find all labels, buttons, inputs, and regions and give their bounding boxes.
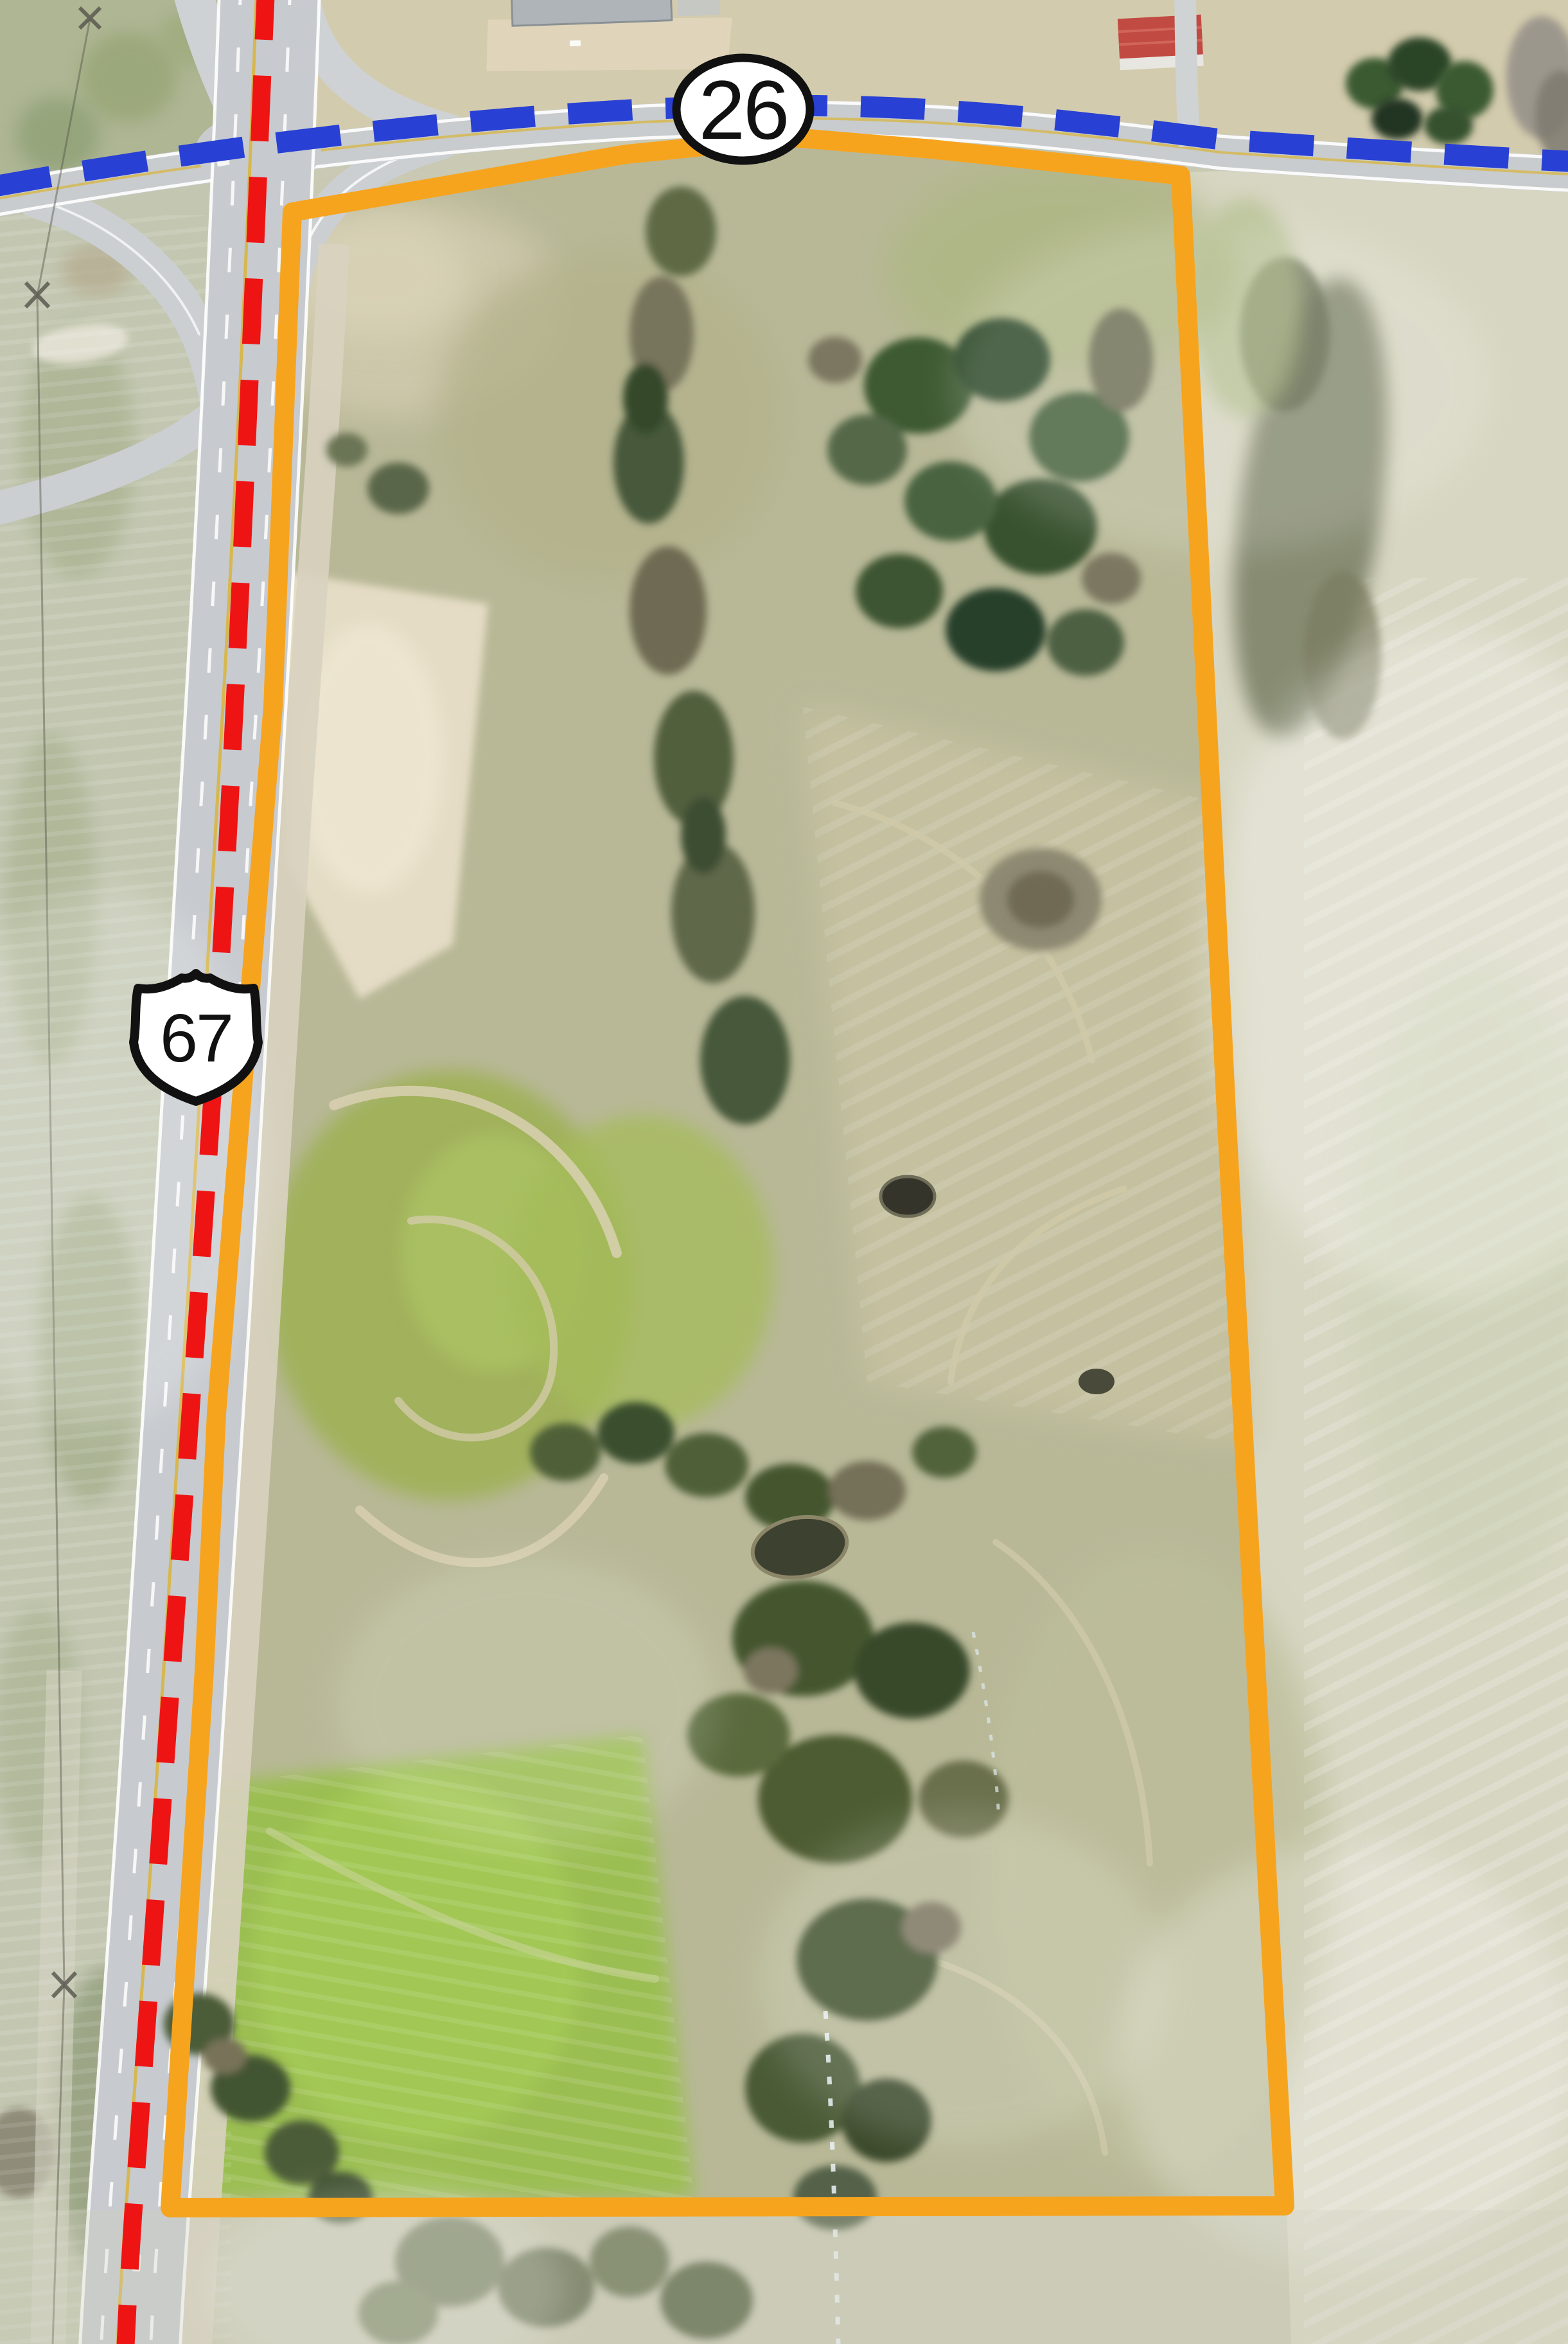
route-26-label: 26 <box>699 63 788 157</box>
map-canvas: 26 67 <box>0 0 1568 2344</box>
us-67-label: 67 <box>160 1000 232 1076</box>
parked-car <box>570 40 581 47</box>
shed-roof <box>677 0 720 16</box>
aerial-map: 26 67 <box>0 0 1568 2344</box>
pond-upper <box>881 1176 935 1216</box>
pond-small <box>1079 1369 1114 1394</box>
route-26-shield: 26 <box>676 58 810 161</box>
commercial-building <box>484 0 734 78</box>
metal-roof <box>511 0 672 26</box>
us-67-shield: 67 <box>134 973 258 1101</box>
